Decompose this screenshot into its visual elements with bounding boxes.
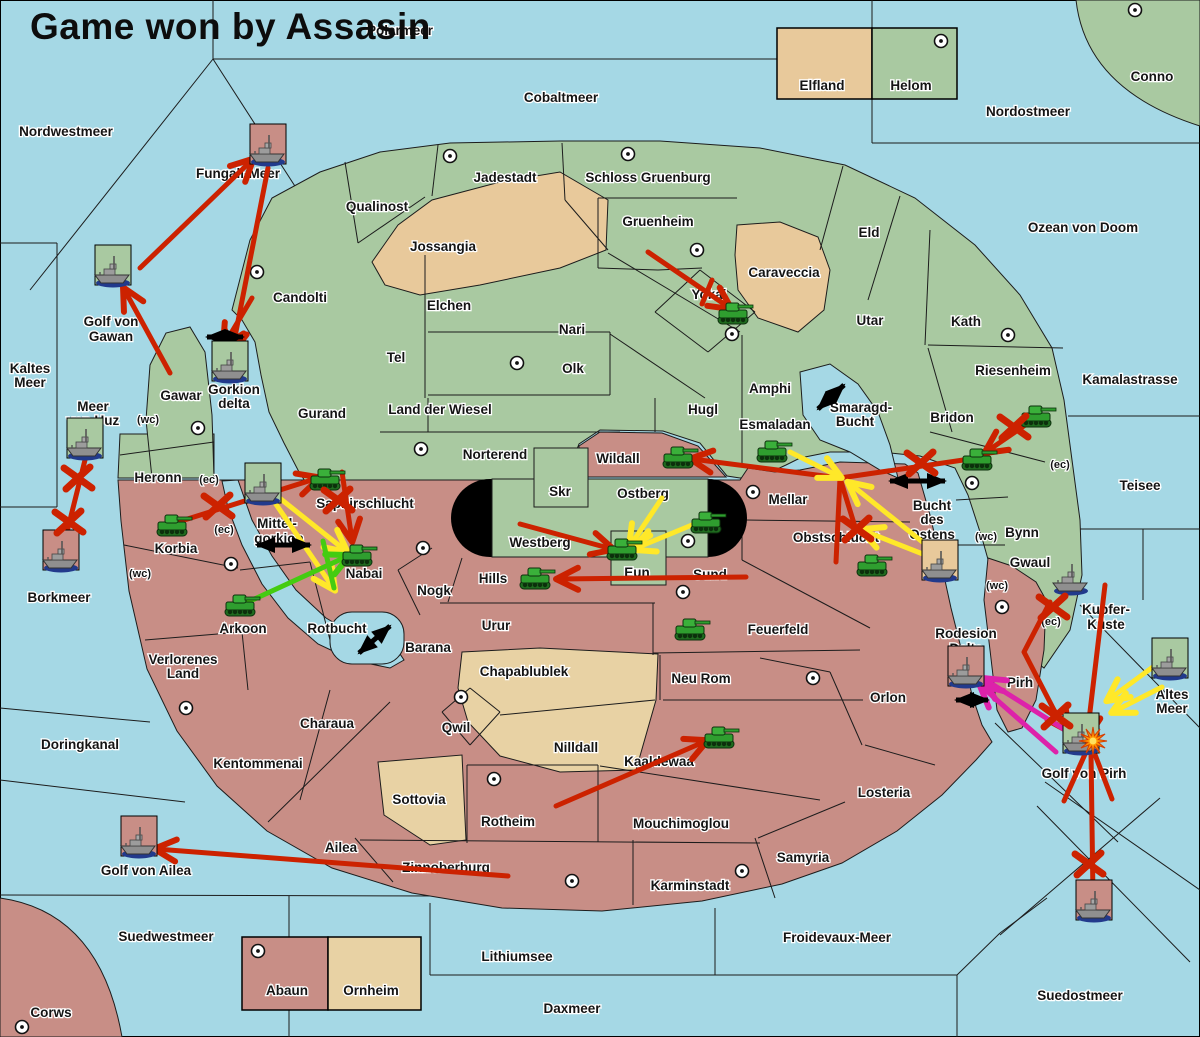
legend-top: ElflandHelom: [777, 28, 957, 99]
supply-center: [192, 422, 205, 435]
coast-tag-ec: (ec): [199, 474, 219, 486]
label-kupfer: Kupfer-: [1082, 602, 1130, 617]
label-heronn: Heronn: [134, 470, 181, 485]
label-k-ste: Küste: [1087, 617, 1125, 632]
supply-center: [807, 672, 820, 685]
legend-bottom-right-swatch: [328, 937, 421, 1010]
fleet-ship-unit: [95, 245, 131, 288]
label-kamalastrasse: Kamalastrasse: [1082, 372, 1178, 387]
supply-center: [225, 558, 238, 571]
label-jossangia: Jossangia: [410, 239, 477, 254]
coast-tag-ec: (ec): [1050, 459, 1070, 471]
supply-center: [511, 357, 524, 370]
label-des: des: [920, 512, 943, 527]
fleet-ship-unit: [245, 463, 281, 506]
label-bridon: Bridon: [930, 410, 974, 425]
legend-label-abaun: Abaun: [266, 983, 308, 998]
label-norterend: Norterend: [463, 447, 528, 462]
label-mouchimoglou: Mouchimoglou: [633, 816, 729, 831]
fleet-ship-unit: [43, 530, 79, 573]
legend-label-ornheim: Ornheim: [343, 983, 399, 998]
label-arkoon: Arkoon: [219, 621, 266, 636]
label-esmaladan: Esmaladan: [739, 417, 810, 432]
label-delta: delta: [218, 396, 250, 411]
label-amphi: Amphi: [749, 381, 791, 396]
label-bynn: Bynn: [1005, 525, 1039, 540]
supply-center: [251, 266, 264, 279]
label-meer: Meer: [77, 399, 109, 414]
label-samyria: Samyria: [777, 850, 830, 865]
label-tel: Tel: [387, 350, 406, 365]
label-sottovia: Sottovia: [392, 792, 446, 807]
label-neu-rom: Neu Rom: [671, 671, 730, 686]
label-caraveccia: Caraveccia: [748, 265, 820, 280]
label-suedwestmeer: Suedwestmeer: [118, 929, 214, 944]
coast-tag-wc: (wc): [975, 531, 997, 543]
label-land-der-wiesel: Land der Wiesel: [388, 402, 491, 417]
label-qwil: Qwil: [442, 720, 471, 735]
game-map-screen: Game won by Assasin ElflandHelomAbaunOrn…: [0, 0, 1200, 1037]
label-hills: Hills: [479, 571, 508, 586]
supply-center: [417, 542, 430, 555]
label-charaua: Charaua: [300, 716, 355, 731]
label-gawar: Gawar: [160, 388, 202, 403]
label-doringkanal: Doringkanal: [41, 737, 119, 752]
label-gorkion: Gorkion: [208, 382, 260, 397]
label-losteria: Losteria: [858, 785, 911, 800]
supply-center: [566, 875, 579, 888]
label-pirh: Pirh: [1007, 675, 1033, 690]
fleet-ship-unit: [1152, 638, 1188, 681]
label-daxmeer: Daxmeer: [543, 1001, 601, 1016]
label-gruenheim: Gruenheim: [622, 214, 693, 229]
legend-label-helom: Helom: [890, 78, 931, 93]
label-nordwestmeer: Nordwestmeer: [19, 124, 114, 139]
label-ozean-von-doom: Ozean von Doom: [1028, 220, 1138, 235]
supply-center: [455, 691, 468, 704]
label-ailea: Ailea: [325, 840, 358, 855]
label-rotbucht: Rotbucht: [307, 621, 367, 636]
label-hugl: Hugl: [688, 402, 718, 417]
label-kaltes: Kaltes: [10, 361, 51, 376]
label-golf-von-pirh: Golf von Pirh: [1042, 766, 1127, 781]
explosion-core: [1090, 738, 1097, 745]
supply-center: [16, 1021, 29, 1034]
coast-tag-wc: (wc): [986, 580, 1008, 592]
legend-bottom: AbaunOrnheim: [242, 937, 421, 1010]
label-verlorenes: Verlorenes: [148, 652, 217, 667]
label-conno: Conno: [1131, 69, 1174, 84]
supply-center: [935, 35, 948, 48]
map-canvas: ElflandHelomAbaunOrnheimPolarmeerNordwes…: [0, 0, 1200, 1037]
label-golf-von: Golf von: [84, 314, 139, 329]
fleet-ship-unit: [922, 540, 958, 583]
label-corws: Corws: [30, 1005, 71, 1020]
label-elchen: Elchen: [427, 298, 471, 313]
supply-center: [415, 443, 428, 456]
supply-center: [682, 535, 695, 548]
label-polarmeer: Polarmeer: [367, 23, 434, 38]
label-urur: Urur: [482, 618, 511, 633]
label-candolti: Candolti: [273, 290, 327, 305]
label-schloss-gruenburg: Schloss Gruenburg: [585, 170, 710, 185]
supply-center: [1002, 329, 1015, 342]
fleet-ship-unit: [1076, 880, 1112, 923]
supply-center: [996, 601, 1009, 614]
label-utar: Utar: [856, 313, 884, 328]
label-qualinost: Qualinost: [346, 199, 409, 214]
supply-center: [691, 244, 704, 257]
supply-center: [677, 586, 690, 599]
label-lithiumsee: Lithiumsee: [481, 949, 553, 964]
supply-center: [444, 150, 457, 163]
label-chapablublek: Chapablublek: [480, 664, 569, 679]
label-feuerfeld: Feuerfeld: [748, 622, 809, 637]
label-nogk: Nogk: [417, 583, 451, 598]
label-golf-von-ailea: Golf von Ailea: [101, 863, 192, 878]
label-riesenheim: Riesenheim: [975, 363, 1051, 378]
label-jadestadt: Jadestadt: [473, 170, 537, 185]
red-order-arrow: [1091, 752, 1093, 897]
label-kath: Kath: [951, 314, 981, 329]
supply-center: [736, 865, 749, 878]
label-froidevaux-meer: Froidevaux-Meer: [783, 930, 892, 945]
label-land: Land: [167, 666, 199, 681]
red-order-arrow: [558, 577, 746, 579]
fleet-ship-unit: [67, 418, 103, 461]
label-teisee: Teisee: [1119, 478, 1161, 493]
label-smaragd: Smaragd-: [830, 400, 892, 415]
coast-tag-wc: (wc): [137, 414, 159, 426]
sea-rotbucht: [330, 612, 404, 664]
label-gawan: Gawan: [89, 329, 133, 344]
label-korbia: Korbia: [155, 541, 198, 556]
label-gwaul: Gwaul: [1010, 555, 1051, 570]
fleet-ship-unit: [121, 816, 157, 859]
label-meer: Meer: [14, 375, 46, 390]
label-rodesion: Rodesion: [935, 626, 997, 641]
fleet-ship-unit: [948, 646, 984, 689]
label-skr: Skr: [549, 484, 572, 499]
supply-center: [726, 328, 739, 341]
fleet-ship-unit: [212, 341, 248, 384]
label-kentommenai: Kentommenai: [213, 756, 302, 771]
label-suedostmeer: Suedostmeer: [1037, 988, 1123, 1003]
legend-label-elfland: Elfland: [799, 78, 844, 93]
fleet-ship-unit: [250, 124, 286, 167]
label-nari: Nari: [559, 322, 585, 337]
label-wildall: Wildall: [596, 451, 639, 466]
label-nabai: Nabai: [346, 566, 383, 581]
label-rotheim: Rotheim: [481, 814, 535, 829]
supply-center: [180, 702, 193, 715]
label-eld: Eld: [858, 225, 879, 240]
label-meer: Meer: [1156, 701, 1188, 716]
label-mellar: Mellar: [768, 492, 808, 507]
label-cobaltmeer: Cobaltmeer: [524, 90, 599, 105]
label-borkmeer: Borkmeer: [27, 590, 91, 605]
supply-center: [488, 773, 501, 786]
supply-center: [1129, 4, 1142, 17]
label-bucht: Bucht: [913, 498, 952, 513]
label-olk: Olk: [562, 361, 584, 376]
label-barana: Barana: [405, 640, 451, 655]
coast-tag-ec: (ec): [214, 524, 234, 536]
label-nordostmeer: Nordostmeer: [986, 104, 1071, 119]
supply-center: [252, 945, 265, 958]
coast-tag-wc: (wc): [129, 568, 151, 580]
label-bucht: Bucht: [836, 414, 875, 429]
supply-center: [747, 486, 760, 499]
label-orlon: Orlon: [870, 690, 906, 705]
label-gurand: Gurand: [298, 406, 346, 421]
label-nilldall: Nilldall: [554, 740, 598, 755]
supply-center: [966, 477, 979, 490]
label-karminstadt: Karminstadt: [651, 878, 730, 893]
supply-center: [622, 148, 635, 161]
